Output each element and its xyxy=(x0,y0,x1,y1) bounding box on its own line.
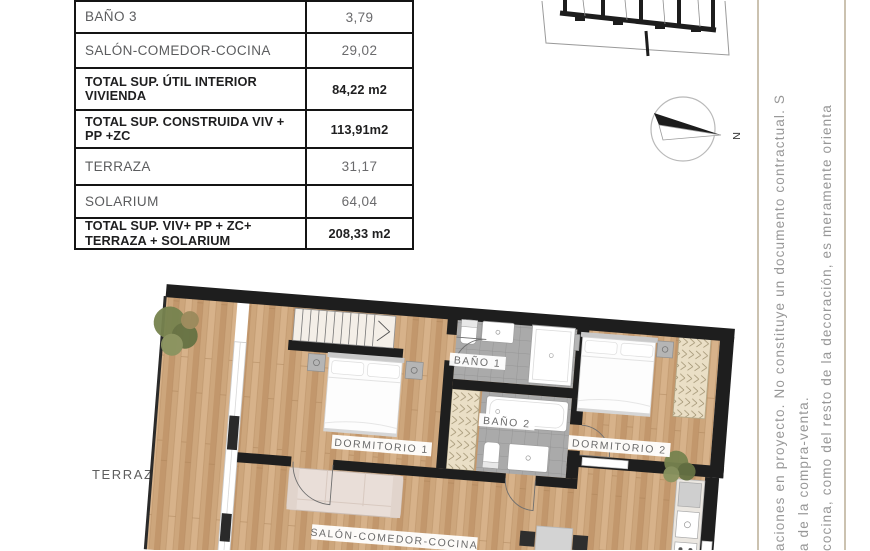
table-row: TOTAL SUP. VIV+ PP + ZC+ TERRAZA + SOLAR… xyxy=(76,217,412,248)
row-label: TOTAL SUP. CONSTRUIDA VIV + PP +ZC xyxy=(76,111,307,147)
table-row: SOLARIUM 64,04 xyxy=(76,184,412,217)
row-value: 3,79 xyxy=(307,2,412,32)
table-row: SALÓN-COMEDOR-COCINA 29,02 xyxy=(76,32,412,67)
row-label: TOTAL SUP. VIV+ PP + ZC+ TERRAZA + SOLAR… xyxy=(76,219,307,248)
row-value: 208,33 m2 xyxy=(307,219,412,248)
row-label: SOLARIUM xyxy=(76,186,307,217)
table-row: TERRAZA 31,17 xyxy=(76,147,412,184)
table-row: BAÑO 3 3,79 xyxy=(76,0,412,32)
architectural-sheet: { "area_table": { "rows": [ {"label":"BA… xyxy=(0,0,870,550)
key-plan xyxy=(533,0,738,62)
disclaimer-note-3: cocina, como del resto de la decoración,… xyxy=(819,104,834,551)
row-value: 113,91m2 xyxy=(307,111,412,147)
sheet-border-line xyxy=(844,0,846,550)
hob-icon xyxy=(673,542,697,550)
sink-icon xyxy=(507,444,549,473)
wardrobe-dormitorio2 xyxy=(673,337,711,419)
row-value: 84,22 m2 xyxy=(307,69,412,109)
row-label: TERRAZA xyxy=(76,149,307,184)
fridge-icon xyxy=(678,482,702,508)
row-value: 29,02 xyxy=(307,34,412,67)
surface-area-table: BAÑO 3 3,79 SALÓN-COMEDOR-COCINA 29,02 T… xyxy=(74,0,414,250)
table-row: TOTAL SUP. CONSTRUIDA VIV + PP +ZC 113,9… xyxy=(76,109,412,147)
row-label: TOTAL SUP. ÚTIL INTERIOR VIVIENDA xyxy=(76,69,307,109)
floor-plan: DORMITORIO 1 DORMITORIO 2 BAÑO 1 BAÑO 2 … xyxy=(55,260,760,550)
row-value: 31,17 xyxy=(307,149,412,184)
table-row: TOTAL SUP. ÚTIL INTERIOR VIVIENDA 84,22 … xyxy=(76,67,412,109)
shower-icon xyxy=(528,325,575,386)
row-value: 64,04 xyxy=(307,186,412,217)
north-arrow-compass: N xyxy=(645,92,740,170)
disclaimer-note-1: aciones en proyecto. No constituye un do… xyxy=(772,94,787,551)
kitchen-sink-icon xyxy=(675,511,699,539)
sink-icon xyxy=(481,321,514,343)
row-label: SALÓN-COMEDOR-COCINA xyxy=(76,34,307,67)
north-label: N xyxy=(730,132,740,140)
row-label: BAÑO 3 xyxy=(76,2,307,32)
disclaimer-note-2: a de la compra-venta. xyxy=(796,396,811,551)
